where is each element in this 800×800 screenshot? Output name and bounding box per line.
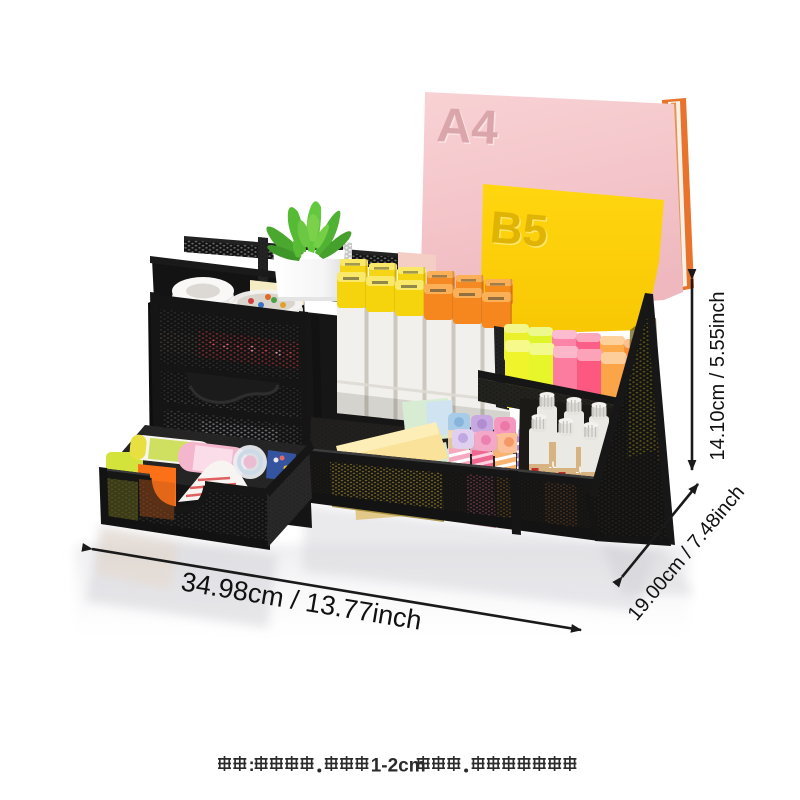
svg-text:B5: B5 [488, 201, 550, 257]
svg-text:14.10cm / 5.55inch: 14.10cm / 5.55inch [707, 292, 729, 461]
svg-text::: : [249, 755, 255, 775]
svg-text:A4: A4 [435, 99, 499, 155]
